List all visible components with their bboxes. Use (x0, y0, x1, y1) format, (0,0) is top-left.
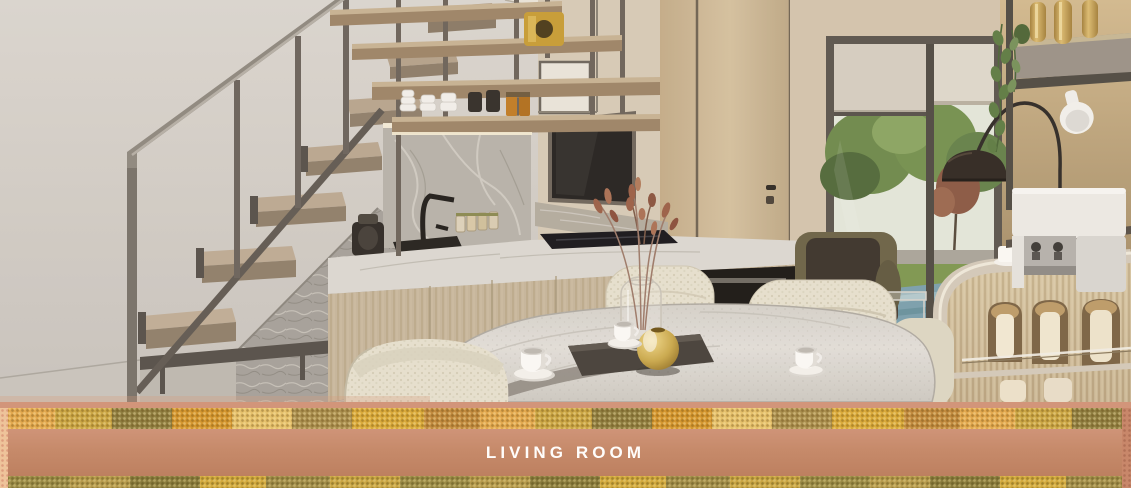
caption-bar: LIVING ROOM (0, 429, 1131, 476)
living-room-card: LIVING ROOM (0, 0, 1131, 488)
caption-banner: LIVING ROOM (0, 402, 1131, 488)
interior-render (0, 0, 1131, 402)
banner-pattern-top (0, 408, 1131, 429)
banner-edge-left (0, 408, 8, 488)
banner-pattern-bottom (0, 476, 1131, 488)
room-label: LIVING ROOM (486, 443, 645, 463)
interior-render-svg (0, 0, 1131, 402)
banner-edge-right (1122, 408, 1131, 488)
lighting-overlay (0, 0, 1131, 402)
banner-frame: LIVING ROOM (0, 408, 1131, 488)
